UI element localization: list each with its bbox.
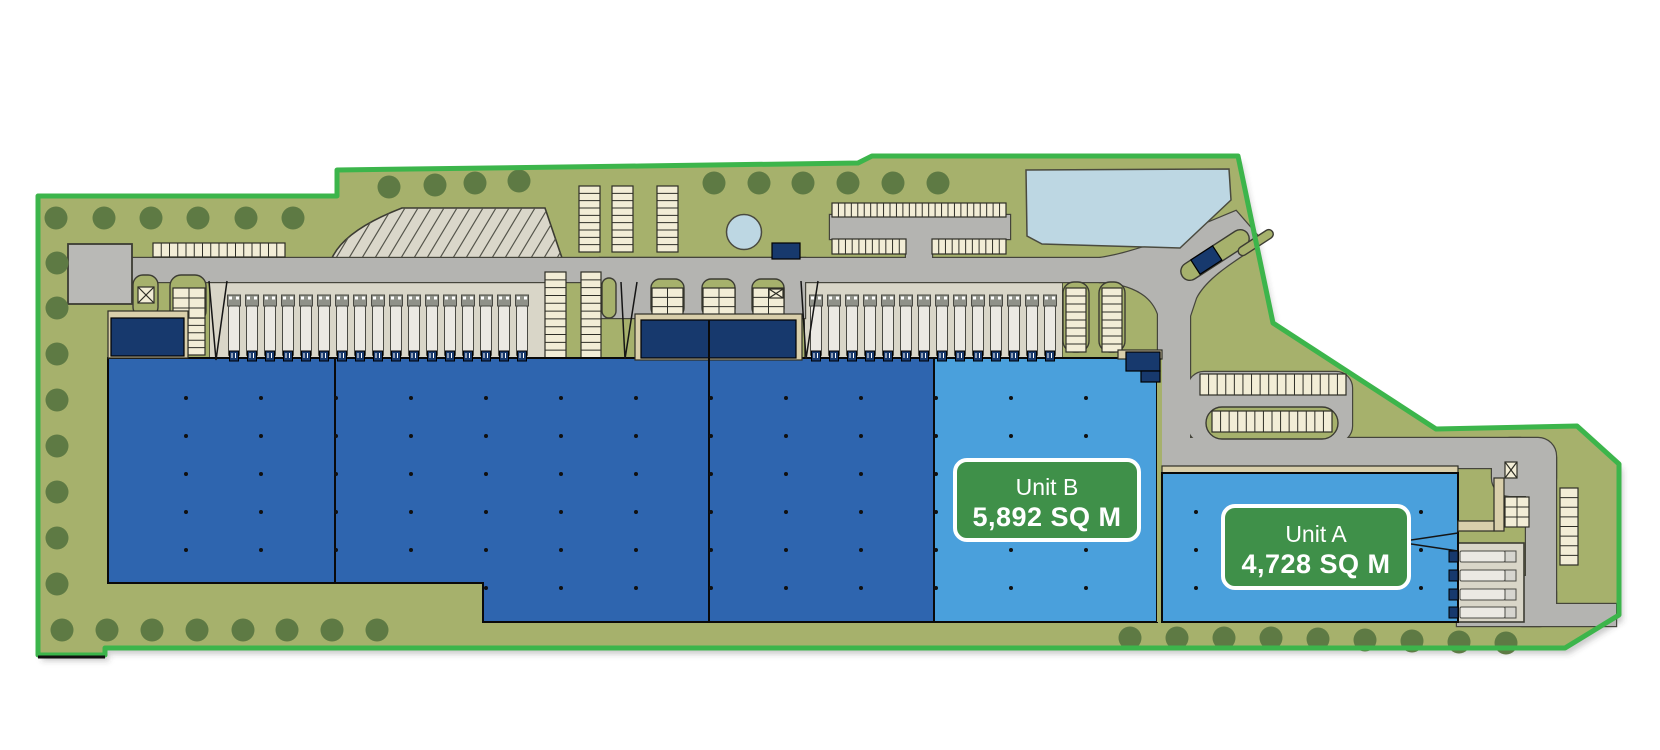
column-dot — [634, 396, 638, 400]
column-dot — [1084, 586, 1088, 590]
column-dot — [784, 434, 788, 438]
column-dot — [709, 510, 713, 514]
windshield — [865, 297, 868, 300]
column-dot — [934, 586, 938, 590]
truck-cab — [1505, 570, 1516, 581]
windshield — [955, 297, 958, 300]
column-dot — [559, 396, 563, 400]
tree — [703, 172, 726, 195]
tree — [45, 207, 68, 230]
truck-trailer — [463, 306, 474, 356]
truck-trailer — [517, 306, 528, 356]
windshield — [1045, 297, 1048, 300]
windshield — [499, 297, 502, 300]
windshield — [326, 297, 329, 300]
tree — [96, 619, 119, 642]
pump-station — [772, 243, 800, 259]
tree — [46, 297, 69, 320]
windshield — [944, 297, 947, 300]
column-dot — [1194, 510, 1198, 514]
tree — [378, 176, 401, 199]
column-dot — [409, 548, 413, 552]
tree — [508, 170, 531, 193]
truck-trailer — [901, 306, 912, 356]
truck-trailer — [1009, 306, 1020, 356]
parking-stall-row — [932, 239, 1006, 254]
truck-cab — [1505, 607, 1516, 618]
truck-trailer — [1045, 306, 1056, 356]
column-dot — [259, 510, 263, 514]
truck-trailer — [247, 306, 258, 356]
office-pod-west — [111, 318, 184, 356]
truck-trailer — [865, 306, 876, 356]
tree — [424, 174, 447, 197]
truck-trailer — [847, 306, 858, 356]
dock-door — [410, 351, 419, 361]
dock-door — [1449, 570, 1458, 581]
truck-trailer — [955, 306, 966, 356]
column-dot — [334, 548, 338, 552]
column-dot — [859, 396, 863, 400]
column-dot — [784, 396, 788, 400]
column-dot — [559, 472, 563, 476]
windshield — [872, 297, 875, 300]
column-dot — [1084, 396, 1088, 400]
column-dot — [184, 510, 188, 514]
unit-a-tan-path-h — [1458, 521, 1494, 531]
windshield — [908, 297, 911, 300]
windshield — [962, 297, 965, 300]
windshield — [308, 297, 311, 300]
windshield — [319, 297, 322, 300]
windshield — [470, 297, 473, 300]
tree — [464, 172, 487, 195]
dock-door — [446, 351, 455, 361]
truck-trailer — [937, 306, 948, 356]
tree — [882, 172, 905, 195]
column-dot — [1419, 510, 1423, 514]
windshield — [998, 297, 1001, 300]
windshield — [926, 297, 929, 300]
windshield — [463, 297, 466, 300]
windshield — [409, 297, 412, 300]
site-plan: Unit B 5,892 SQ M Unit A 4,728 SQ M — [0, 0, 1660, 750]
tree — [282, 207, 305, 230]
truck-trailer — [811, 306, 822, 356]
truck-trailer — [919, 306, 930, 356]
windshield — [506, 297, 509, 300]
dock-door — [428, 351, 437, 361]
windshield — [524, 297, 527, 300]
column-dot — [1009, 586, 1013, 590]
windshield — [829, 297, 832, 300]
column-dot — [784, 586, 788, 590]
unit-a-name: Unit A — [1285, 521, 1347, 547]
tree — [46, 527, 69, 550]
column-dot — [934, 434, 938, 438]
tree — [837, 172, 860, 195]
tree — [93, 207, 116, 230]
column-dot — [334, 434, 338, 438]
tree — [276, 619, 299, 642]
unit-a-badge[interactable]: Unit A 4,728 SQ M — [1223, 506, 1409, 588]
column-dot — [559, 548, 563, 552]
column-dot — [484, 586, 488, 590]
tree — [140, 207, 163, 230]
dock-door — [320, 351, 329, 361]
column-dot — [859, 586, 863, 590]
truck-trailer — [1460, 607, 1505, 618]
dock-door — [302, 351, 311, 361]
dock-door — [884, 351, 893, 361]
column-dot — [184, 548, 188, 552]
unit-a-area: 4,728 SQ M — [1241, 549, 1390, 579]
dock-door — [500, 351, 509, 361]
windshield — [991, 297, 994, 300]
column-dot — [784, 472, 788, 476]
truck-trailer — [409, 306, 420, 356]
column-dot — [484, 434, 488, 438]
truck-trailer — [427, 306, 438, 356]
windshield — [980, 297, 983, 300]
windshield — [265, 297, 268, 300]
windshield — [818, 297, 821, 300]
truck-trailer — [1460, 589, 1505, 600]
parking-stall-column — [612, 186, 633, 252]
tree — [51, 619, 74, 642]
truck-trailer — [1027, 306, 1038, 356]
windshield — [283, 297, 286, 300]
windshield — [847, 297, 850, 300]
dock-door — [974, 351, 983, 361]
tree — [141, 619, 164, 642]
truck-trailer — [499, 306, 510, 356]
windshield — [380, 297, 383, 300]
truck-trailer — [1460, 570, 1505, 581]
gatehouse — [68, 244, 132, 304]
tree — [46, 343, 69, 366]
column-dot — [259, 396, 263, 400]
windshield — [355, 297, 358, 300]
column-dot — [559, 434, 563, 438]
parking-stall-column — [579, 186, 600, 252]
dock-door — [248, 351, 257, 361]
unit-b-area: 5,892 SQ M — [972, 502, 1121, 532]
windshield — [290, 297, 293, 300]
column-dot — [184, 434, 188, 438]
windshield — [901, 297, 904, 300]
windshield — [391, 297, 394, 300]
column-dot — [484, 472, 488, 476]
column-dot — [409, 472, 413, 476]
dock-door — [902, 351, 911, 361]
parking-stall-row — [1200, 374, 1346, 395]
dock-door — [920, 351, 929, 361]
windshield — [854, 297, 857, 300]
tree — [232, 619, 255, 642]
windshield — [362, 297, 365, 300]
windshield — [890, 297, 893, 300]
column-dot — [784, 510, 788, 514]
dock-door — [956, 351, 965, 361]
windshield — [301, 297, 304, 300]
windshield — [229, 297, 232, 300]
column-dot — [934, 510, 938, 514]
dock-door — [482, 351, 491, 361]
windshield — [937, 297, 940, 300]
windshield — [247, 297, 250, 300]
column-dot — [859, 510, 863, 514]
column-dot — [1419, 548, 1423, 552]
dock-door — [374, 351, 383, 361]
unit-b-badge[interactable]: Unit B 5,892 SQ M — [955, 460, 1139, 540]
column-dot — [934, 396, 938, 400]
truck-trailer — [883, 306, 894, 356]
tree — [186, 619, 209, 642]
windshield — [836, 297, 839, 300]
truck-trailer — [265, 306, 276, 356]
tree — [366, 619, 389, 642]
tree — [321, 619, 344, 642]
truck-trailer — [829, 306, 840, 356]
tree — [235, 207, 258, 230]
column-dot — [334, 396, 338, 400]
windshield — [398, 297, 401, 300]
parking-stall-column — [581, 272, 601, 358]
windshield — [236, 297, 239, 300]
dock-door — [1010, 351, 1019, 361]
tree — [748, 172, 771, 195]
windshield — [488, 297, 491, 300]
truck-trailer — [445, 306, 456, 356]
windshield — [811, 297, 814, 300]
dock-door — [338, 351, 347, 361]
tree — [792, 172, 815, 195]
column-dot — [1084, 548, 1088, 552]
column-dot — [484, 510, 488, 514]
column-dot — [334, 510, 338, 514]
column-dot — [634, 472, 638, 476]
windshield — [272, 297, 275, 300]
column-dot — [634, 434, 638, 438]
truck-trailer — [337, 306, 348, 356]
tree — [46, 252, 69, 275]
column-dot — [1194, 586, 1198, 590]
column-dot — [1194, 548, 1198, 552]
windshield — [1052, 297, 1055, 300]
column-dot — [709, 434, 713, 438]
dock-door — [1449, 551, 1458, 562]
column-dot — [259, 472, 263, 476]
dock-door — [866, 351, 875, 361]
windshield — [1027, 297, 1030, 300]
windshield — [344, 297, 347, 300]
truck-trailer — [355, 306, 366, 356]
column-dot — [934, 472, 938, 476]
column-dot — [559, 586, 563, 590]
column-dot — [784, 548, 788, 552]
column-dot — [1009, 548, 1013, 552]
parking-stall-column — [657, 186, 678, 252]
truck-trailer — [373, 306, 384, 356]
column-dot — [259, 548, 263, 552]
parking-stall-column — [545, 272, 566, 358]
dock-door — [464, 351, 473, 361]
dock-door — [992, 351, 1001, 361]
column-dot — [559, 510, 563, 514]
dock-door — [1046, 351, 1055, 361]
windshield — [517, 297, 520, 300]
small-pond — [727, 215, 762, 250]
column-dot — [859, 548, 863, 552]
site-plan-canvas: Unit B 5,892 SQ M Unit A 4,728 SQ M — [0, 0, 1660, 750]
truck-trailer — [481, 306, 492, 356]
tree — [927, 172, 950, 195]
dock-door — [230, 351, 239, 361]
tree — [187, 207, 210, 230]
windshield — [1016, 297, 1019, 300]
windshield — [337, 297, 340, 300]
column-dot — [484, 548, 488, 552]
parking-stall-column — [188, 318, 205, 355]
windshield — [481, 297, 484, 300]
truck-trailer — [391, 306, 402, 356]
dock-door — [1449, 607, 1458, 618]
column-dot — [709, 548, 713, 552]
truck-trailer — [1460, 551, 1505, 562]
dock-door — [392, 351, 401, 361]
column-dot — [334, 472, 338, 476]
windshield — [416, 297, 419, 300]
column-dot — [184, 472, 188, 476]
office-pod-center — [641, 320, 796, 358]
column-dot — [634, 510, 638, 514]
truck-cab — [1505, 589, 1516, 600]
windshield — [919, 297, 922, 300]
column-dot — [184, 396, 188, 400]
unit-a-tan-path-v — [1494, 478, 1504, 531]
dock-door — [266, 351, 275, 361]
column-dot — [1419, 586, 1423, 590]
tree — [46, 481, 69, 504]
column-dot — [634, 548, 638, 552]
windshield — [973, 297, 976, 300]
windshield — [1034, 297, 1037, 300]
windshield — [1009, 297, 1012, 300]
tree — [46, 435, 69, 458]
dock-door — [356, 351, 365, 361]
windshield — [452, 297, 455, 300]
dock-door — [812, 351, 821, 361]
column-dot — [634, 586, 638, 590]
column-dot — [859, 472, 863, 476]
column-dot — [1009, 396, 1013, 400]
column-dot — [409, 434, 413, 438]
unit-b-name: Unit B — [1016, 474, 1079, 500]
dock-door — [284, 351, 293, 361]
truck-trailer — [301, 306, 312, 356]
column-dot — [859, 434, 863, 438]
column-dot — [484, 396, 488, 400]
windshield — [427, 297, 430, 300]
dock-door — [1028, 351, 1037, 361]
column-dot — [1084, 434, 1088, 438]
dock-door — [938, 351, 947, 361]
office-pod-east-step — [1141, 371, 1160, 382]
windshield — [254, 297, 257, 300]
windshield — [445, 297, 448, 300]
existing-warehouse — [108, 358, 934, 622]
column-dot — [709, 396, 713, 400]
column-dot — [1009, 434, 1013, 438]
truck-cab — [1505, 551, 1516, 562]
tree — [1495, 632, 1518, 655]
windshield — [434, 297, 437, 300]
column-dot — [934, 548, 938, 552]
truck-trailer — [991, 306, 1002, 356]
truck-trailer — [229, 306, 240, 356]
column-dot — [709, 586, 713, 590]
windshield — [373, 297, 376, 300]
office-pod-east — [1126, 352, 1160, 371]
column-dot — [409, 510, 413, 514]
dock-door — [848, 351, 857, 361]
truck-trailer — [973, 306, 984, 356]
windshield — [883, 297, 886, 300]
column-dot — [259, 434, 263, 438]
column-dot — [709, 472, 713, 476]
dock-door — [1449, 589, 1458, 600]
dock-door — [830, 351, 839, 361]
tree — [46, 389, 69, 412]
dock-door — [518, 351, 527, 361]
truck-trailer — [319, 306, 330, 356]
column-dot — [409, 396, 413, 400]
parking-stall-row — [832, 239, 906, 254]
truck-trailer — [283, 306, 294, 356]
tree — [46, 573, 69, 596]
